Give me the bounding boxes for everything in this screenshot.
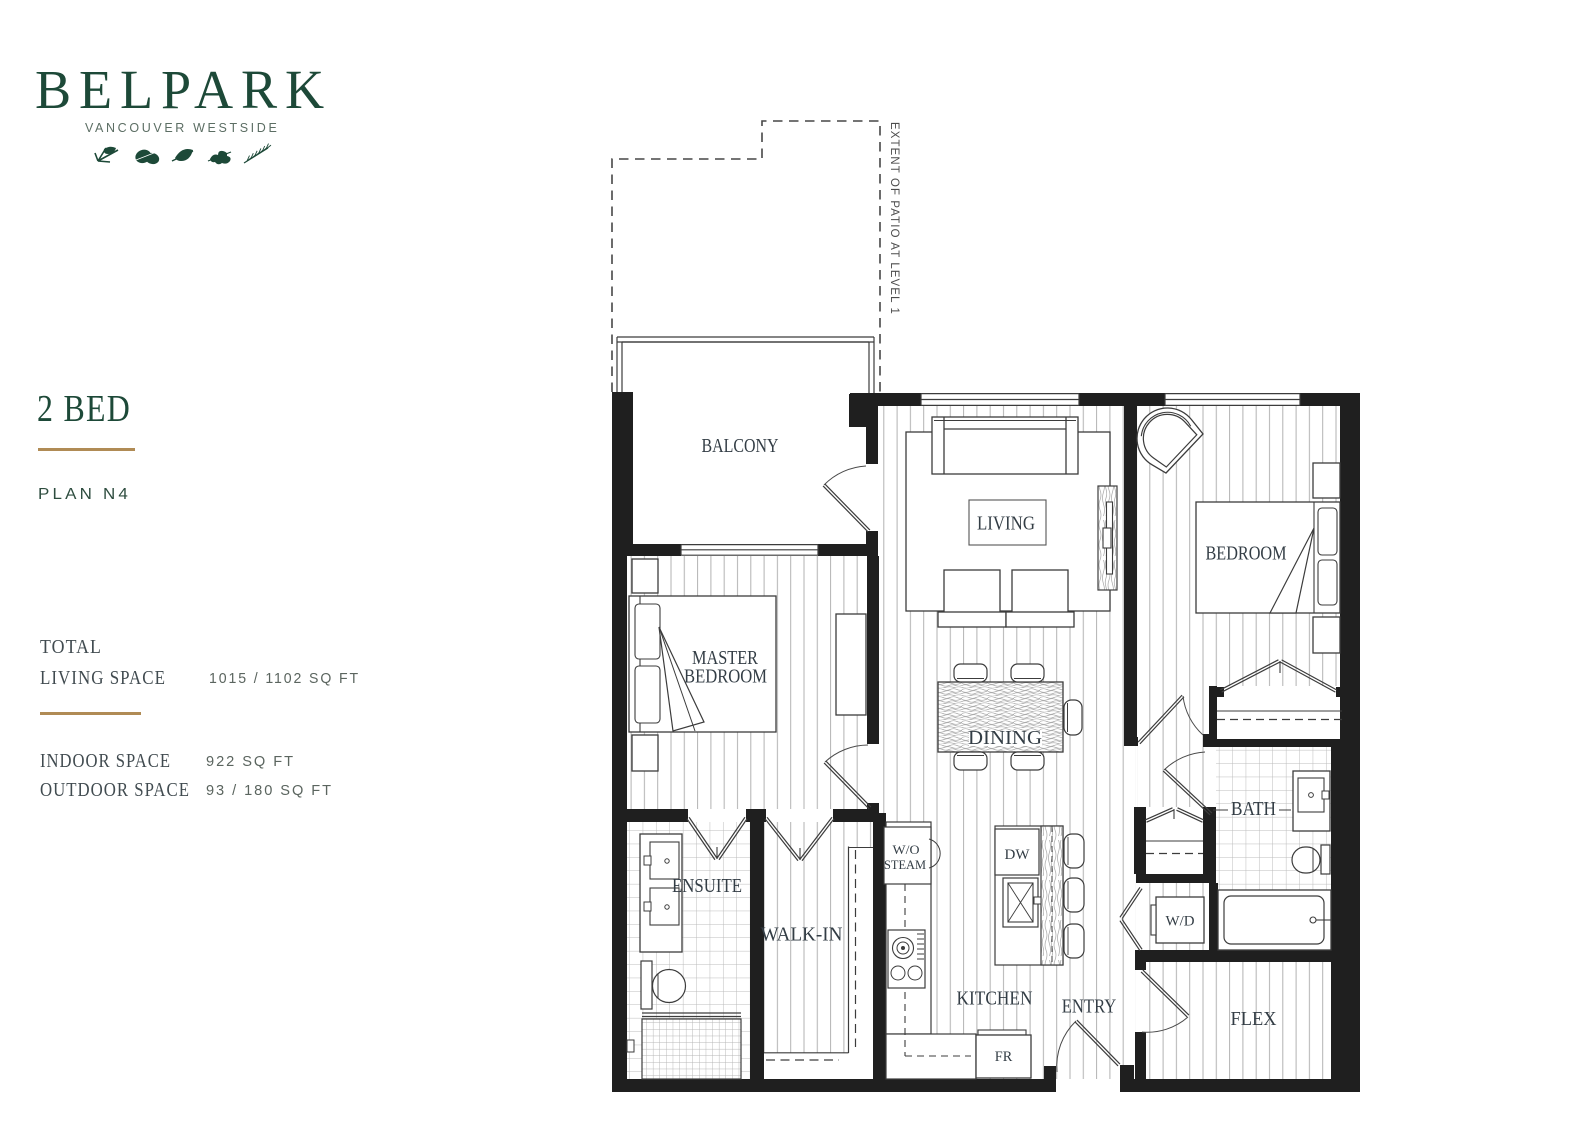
svg-text:DW: DW — [1005, 847, 1031, 863]
svg-text:STEAM: STEAM — [884, 857, 926, 872]
svg-text:BALCONY: BALCONY — [702, 436, 779, 457]
svg-text:KITCHEN: KITCHEN — [957, 989, 1033, 1010]
svg-text:INDOOR SPACE: INDOOR SPACE — [40, 750, 171, 772]
svg-text:VANCOUVER WESTSIDE: VANCOUVER WESTSIDE — [85, 121, 281, 135]
svg-text:LIVING: LIVING — [977, 514, 1035, 535]
svg-text:BEDROOM: BEDROOM — [684, 667, 767, 688]
svg-text:ENSUITE: ENSUITE — [672, 876, 742, 897]
svg-text:W/D: W/D — [1166, 914, 1195, 930]
svg-text:1015 / 1102 SQ FT: 1015 / 1102 SQ FT — [209, 670, 360, 687]
svg-text:FR: FR — [995, 1049, 1013, 1065]
svg-text:WALK-IN: WALK-IN — [761, 925, 843, 946]
svg-text:LIVING SPACE: LIVING SPACE — [40, 667, 166, 689]
svg-text:FLEX: FLEX — [1231, 1009, 1277, 1030]
svg-text:BELPARK: BELPARK — [35, 59, 332, 120]
svg-text:OUTDOOR SPACE: OUTDOOR SPACE — [40, 779, 190, 801]
svg-text:BATH: BATH — [1231, 799, 1276, 820]
svg-text:DINING: DINING — [968, 728, 1042, 749]
svg-text:ENTRY: ENTRY — [1062, 997, 1117, 1018]
svg-text:PLAN N4: PLAN N4 — [38, 486, 131, 503]
svg-text:93 / 180 SQ FT: 93 / 180 SQ FT — [206, 782, 333, 799]
svg-text:BEDROOM: BEDROOM — [1206, 544, 1287, 565]
svg-text:TOTAL: TOTAL — [40, 636, 102, 658]
svg-text:922 SQ FT: 922 SQ FT — [206, 753, 295, 770]
svg-text:2 BED: 2 BED — [37, 388, 131, 430]
svg-text:W/O: W/O — [893, 842, 920, 857]
svg-text:EXTENT OF PATIO AT LEVEL 1: EXTENT OF PATIO AT LEVEL 1 — [888, 122, 902, 315]
